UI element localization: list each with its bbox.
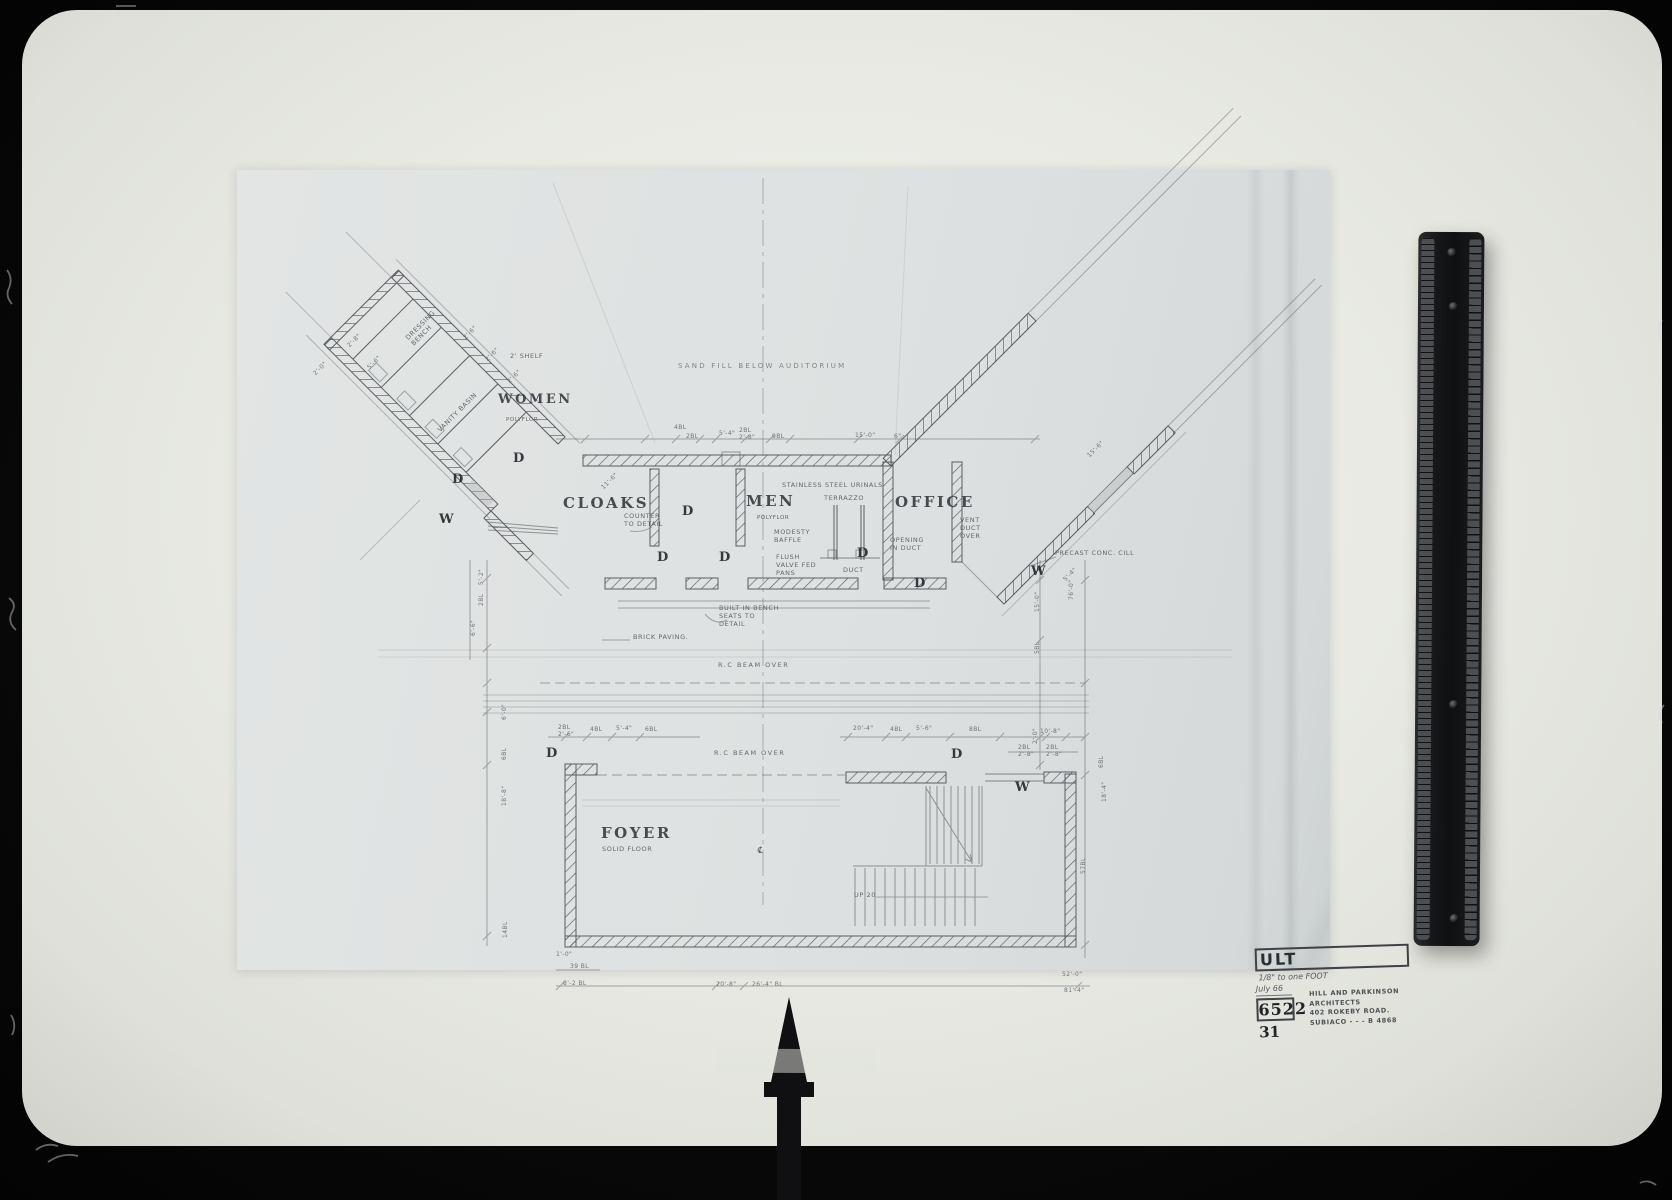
film-scratches [7,6,1664,1185]
film-marks-and-pointer [0,0,1672,1200]
copy-stand-pointer [764,997,814,1200]
photograph-of-architectural-drawing: WOMEN CLOAKS MEN OFFICE FOYER POLYFLOR P… [0,0,1672,1200]
tape-strip [716,1048,876,1073]
